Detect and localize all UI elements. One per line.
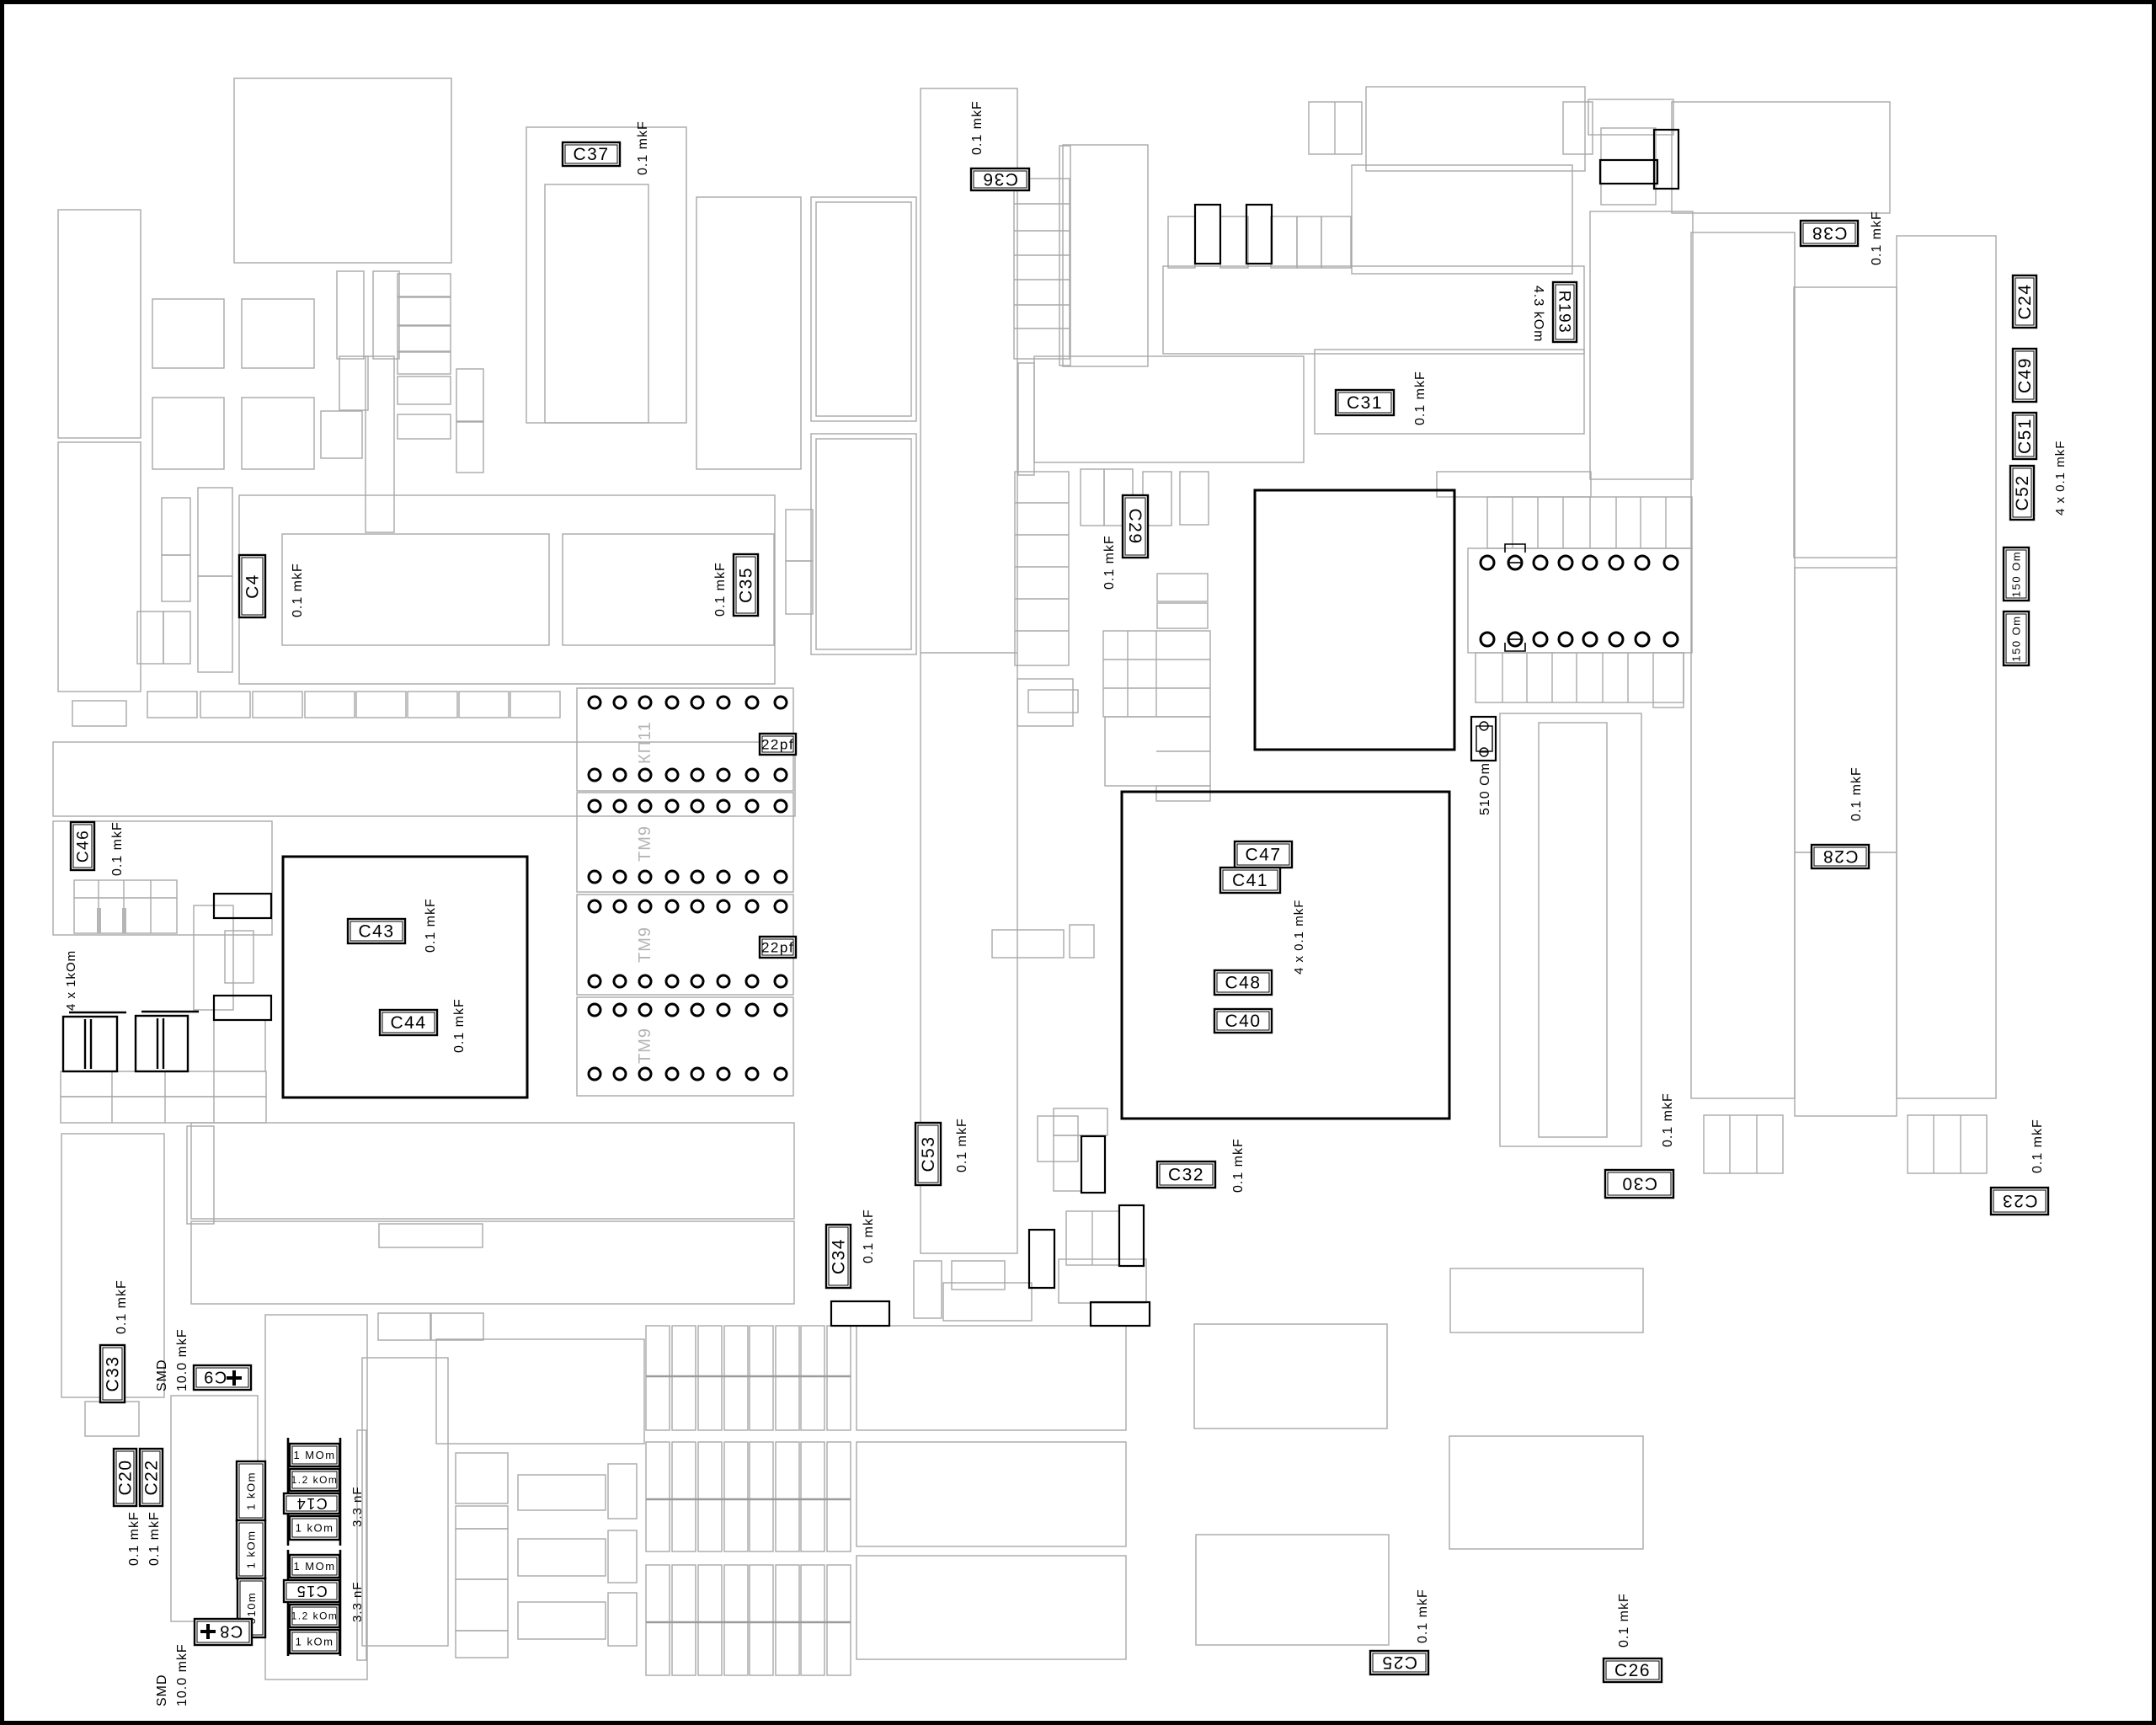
svg-text:C29: C29 [1125, 508, 1145, 544]
svg-text:C40: C40 [1225, 1012, 1261, 1031]
svg-text:1.2 kOm: 1.2 kOm [291, 1474, 339, 1486]
svg-text:C33: C33 [104, 1355, 123, 1391]
svg-text:1.2 kOm: 1.2 kOm [291, 1610, 339, 1622]
svg-text:C32: C32 [1168, 1166, 1204, 1185]
svg-text:C30: C30 [1621, 1173, 1657, 1193]
svg-text:4 x 1kOm: 4 x 1kOm [64, 950, 78, 1011]
svg-text:КП11: КП11 [636, 721, 654, 764]
svg-text:1 kOm: 1 kOm [244, 1530, 257, 1569]
svg-text:C28: C28 [1822, 846, 1858, 866]
svg-text:C41: C41 [1232, 871, 1268, 890]
svg-text:C34: C34 [830, 1238, 849, 1274]
svg-text:1 kOm: 1 kOm [296, 1635, 334, 1648]
svg-text:C51: C51 [2015, 418, 2035, 454]
svg-text:C53: C53 [919, 1135, 938, 1172]
svg-text:C25: C25 [1381, 1653, 1417, 1672]
svg-text:0.1 mkF: 0.1 mkF [862, 1209, 876, 1263]
svg-text:C23: C23 [2001, 1191, 2037, 1210]
svg-text:0.1 mkF: 0.1 mkF [127, 1511, 141, 1566]
svg-text:0.1 mkF: 0.1 mkF [1661, 1092, 1675, 1147]
svg-text:3.3 nF: 3.3 nF [350, 1581, 365, 1622]
svg-text:C26: C26 [1614, 1661, 1651, 1680]
svg-text:C47: C47 [1245, 846, 1281, 865]
svg-text:C20: C20 [116, 1459, 136, 1495]
svg-text:C35: C35 [737, 567, 756, 603]
svg-text:C43: C43 [358, 922, 394, 942]
svg-text:4 x 0.1 mkF: 4 x 0.1 mkF [2053, 441, 2068, 515]
svg-text:SMD: SMD [155, 1359, 169, 1391]
svg-text:SMD: SMD [155, 1674, 169, 1706]
svg-text:C4: C4 [243, 574, 263, 599]
svg-text:0.1 mkF: 0.1 mkF [115, 1279, 129, 1334]
svg-text:0.1 mkF: 0.1 mkF [1231, 1138, 1246, 1193]
svg-text:10.0 mkF: 10.0 mkF [175, 1643, 189, 1706]
svg-text:C49: C49 [2015, 357, 2035, 393]
svg-text:C36: C36 [982, 169, 1018, 189]
svg-text:C44: C44 [390, 1013, 426, 1033]
svg-text:150 Om: 150 Om [2009, 551, 2022, 597]
svg-text:ТМ9: ТМ9 [636, 1028, 654, 1064]
svg-text:22pf: 22pf [761, 736, 794, 752]
svg-text:C9: C9 [203, 1368, 227, 1386]
svg-text:0.1 mkF: 0.1 mkF [1617, 1593, 1631, 1648]
svg-text:0.1 mkF: 0.1 mkF [1416, 1589, 1430, 1643]
svg-text:4 x 0.1 mkF: 4 x 0.1 mkF [1292, 900, 1306, 975]
svg-text:R193: R193 [1556, 291, 1573, 334]
svg-text:0.1 mkF: 0.1 mkF [452, 998, 467, 1053]
svg-text:0.1 mkF: 0.1 mkF [291, 563, 305, 617]
svg-text:0.1 mkF: 0.1 mkF [970, 100, 985, 155]
svg-text:22pf: 22pf [761, 939, 794, 955]
svg-text:0.1 mkF: 0.1 mkF [2031, 1119, 2045, 1173]
svg-text:0.1 mkF: 0.1 mkF [1413, 371, 1428, 425]
svg-text:1 MOm: 1 MOm [293, 1449, 335, 1461]
svg-text:1 kOm: 1 kOm [244, 1471, 257, 1510]
svg-text:0.1 mkF: 0.1 mkF [424, 898, 438, 953]
svg-text:C52: C52 [2013, 474, 2032, 510]
svg-text:ТМ9: ТМ9 [636, 825, 654, 862]
svg-text:C8: C8 [219, 1622, 243, 1641]
svg-text:C48: C48 [1225, 974, 1261, 993]
svg-text:0.1 mkF: 0.1 mkF [636, 120, 650, 175]
svg-text:0.1 mkF: 0.1 mkF [110, 821, 125, 876]
svg-text:C22: C22 [142, 1459, 162, 1495]
svg-text:150 Om: 150 Om [2009, 615, 2022, 661]
svg-text:C14: C14 [296, 1495, 328, 1512]
svg-text:1 kOm: 1 kOm [296, 1521, 334, 1534]
svg-text:C15: C15 [296, 1583, 328, 1599]
svg-text:C31: C31 [1347, 393, 1383, 413]
svg-text:0.1 mkF: 0.1 mkF [713, 562, 728, 617]
svg-text:C46: C46 [74, 830, 92, 862]
svg-text:4.3 kOm: 4.3 kOm [1531, 286, 1545, 342]
svg-text:510 Om: 510 Om [1478, 762, 1492, 815]
svg-text:0.1 mkF: 0.1 mkF [147, 1511, 162, 1566]
svg-text:0.1 mkF: 0.1 mkF [1849, 766, 1864, 821]
svg-text:10.0 mkF: 10.0 mkF [175, 1328, 189, 1391]
svg-text:0.1 mkF: 0.1 mkF [955, 1118, 969, 1172]
svg-text:3.3 nF: 3.3 nF [350, 1486, 365, 1527]
svg-text:0.1 mkF: 0.1 mkF [1870, 211, 1884, 265]
svg-text:ТМ9: ТМ9 [636, 927, 654, 963]
svg-text:C24: C24 [2015, 283, 2035, 319]
svg-text:C38: C38 [1811, 223, 1847, 243]
svg-text:1 MOm: 1 MOm [293, 1560, 335, 1573]
svg-text:0.1 mkF: 0.1 mkF [1102, 535, 1117, 590]
svg-text:C37: C37 [573, 145, 609, 164]
